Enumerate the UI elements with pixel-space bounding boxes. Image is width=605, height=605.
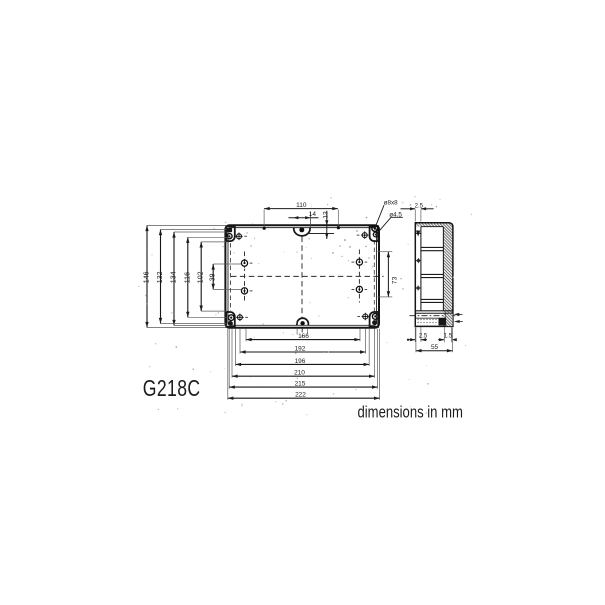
svg-text:210: 210 — [294, 370, 305, 377]
svg-text:166: 166 — [298, 333, 309, 340]
svg-text:110: 110 — [296, 202, 307, 209]
svg-text:73: 73 — [391, 276, 398, 284]
svg-text:222: 222 — [295, 392, 306, 399]
svg-text:dimensions in mm: dimensions in mm — [358, 403, 463, 422]
svg-text:55: 55 — [431, 344, 439, 351]
svg-text:1.5: 1.5 — [444, 334, 453, 340]
svg-text:14: 14 — [309, 211, 317, 218]
svg-text:102: 102 — [198, 271, 205, 283]
svg-text:2.5: 2.5 — [415, 203, 424, 209]
svg-text:215: 215 — [295, 381, 306, 388]
svg-text:132: 132 — [157, 271, 164, 283]
svg-text:192: 192 — [295, 345, 306, 352]
svg-text:134: 134 — [171, 271, 178, 283]
svg-text:116: 116 — [184, 272, 191, 283]
svg-text:39: 39 — [210, 273, 217, 281]
svg-text:2.5: 2.5 — [419, 333, 428, 339]
svg-text:G218C: G218C — [143, 376, 201, 402]
svg-text:146: 146 — [144, 271, 151, 283]
svg-text:13: 13 — [323, 211, 330, 219]
svg-text:196: 196 — [295, 358, 306, 365]
svg-text:ø8x8: ø8x8 — [384, 200, 398, 207]
